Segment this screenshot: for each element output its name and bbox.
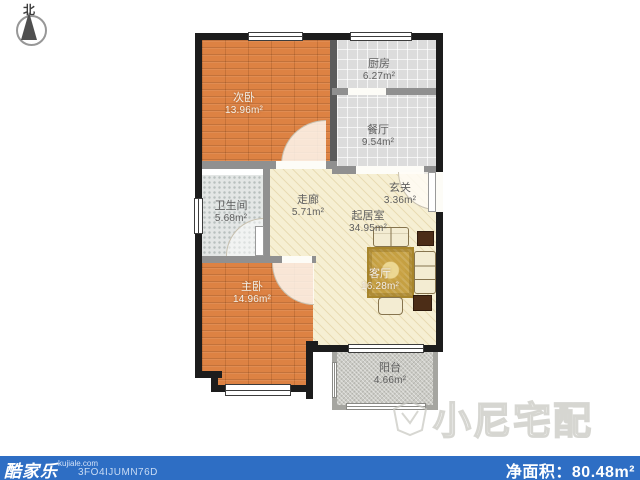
kujiale-logo: 酷家乐 <box>4 457 58 480</box>
armchair <box>378 297 403 315</box>
room-label-kitchen: 厨房 6.27m² <box>363 58 395 83</box>
net-area-value: 80.48m² <box>572 464 635 480</box>
room-name: 卫生间 <box>215 200 248 213</box>
room-area: 3.36m² <box>384 195 416 207</box>
window-bathroom <box>194 198 203 234</box>
room-label-entryway: 玄关 3.36m² <box>384 182 416 207</box>
room-area: 9.54m² <box>362 137 394 149</box>
compass-needle-icon <box>21 12 37 40</box>
room-area: 14.96m² <box>233 294 271 306</box>
bedroom2-door-opening <box>276 161 326 169</box>
side-table-bottom <box>413 295 432 311</box>
bathroom-door-leaf <box>255 226 264 256</box>
room-name: 餐厅 <box>362 124 394 137</box>
outline-notch <box>195 378 211 392</box>
watermark-text: 小尼宅配 <box>433 390 593 445</box>
window-top-kitchen <box>350 32 412 41</box>
room-area: 5.71m² <box>292 207 324 219</box>
balcony-rail-bottom <box>346 403 426 410</box>
room-label-corridor: 走廊 5.71m² <box>292 194 324 219</box>
window-master-bedroom <box>225 384 291 396</box>
room-label-parlor: 客厅 16.28m² <box>361 268 399 293</box>
room-name: 厨房 <box>363 58 395 71</box>
compass: 北 <box>8 1 44 49</box>
room-label-dining: 餐厅 9.54m² <box>362 124 394 149</box>
room-label-livingroom: 起居室 34.95m² <box>349 210 387 235</box>
wall-bathroom-corridor <box>263 169 270 263</box>
plan-code: 3FO4IJUMN76D <box>78 467 158 478</box>
floorplan-canvas: 北 <box>0 0 640 480</box>
room-label-bedroom2: 次卧 13.96m² <box>225 92 263 117</box>
room-name: 走廊 <box>292 194 324 207</box>
room-area: 6.27m² <box>363 71 395 83</box>
master-door-opening <box>282 256 312 263</box>
footer-bar: 酷家乐 kujiale.com 3FO4IJUMN76D 净面积：80.48m² <box>0 456 640 480</box>
kitchen-opening <box>348 88 386 95</box>
room-label-bathroom: 卫生间 5.68m² <box>215 200 248 225</box>
room-name: 次卧 <box>225 92 263 105</box>
room-name: 起居室 <box>349 210 387 223</box>
net-area-label: 净面积： <box>506 464 572 480</box>
balcony-rail-left <box>332 362 337 398</box>
room-area: 34.95m² <box>349 223 387 235</box>
wall-bedroom2-kitchen <box>330 40 337 169</box>
room-name: 阳台 <box>374 362 406 375</box>
room-name: 玄关 <box>384 182 416 195</box>
room-label-master-bedroom: 主卧 14.96m² <box>233 281 271 306</box>
room-area: 5.68m² <box>215 213 248 225</box>
room-area: 13.96m² <box>225 105 263 117</box>
entrance-door-leaf <box>428 172 436 212</box>
three-seat-sofa <box>414 251 436 294</box>
room-name: 客厅 <box>361 268 399 281</box>
room-name: 主卧 <box>233 281 271 294</box>
balcony-wall-right <box>433 352 438 410</box>
side-table-top <box>417 231 434 246</box>
room-area: 16.28m² <box>361 281 399 293</box>
window-top-bedroom2 <box>248 32 303 41</box>
room-label-balcony: 阳台 4.66m² <box>374 362 406 387</box>
entrance-opening <box>436 172 443 212</box>
balcony-sliding-door <box>348 344 424 353</box>
net-area: 净面积：80.48m² <box>506 458 635 480</box>
room-area: 4.66m² <box>374 375 406 387</box>
